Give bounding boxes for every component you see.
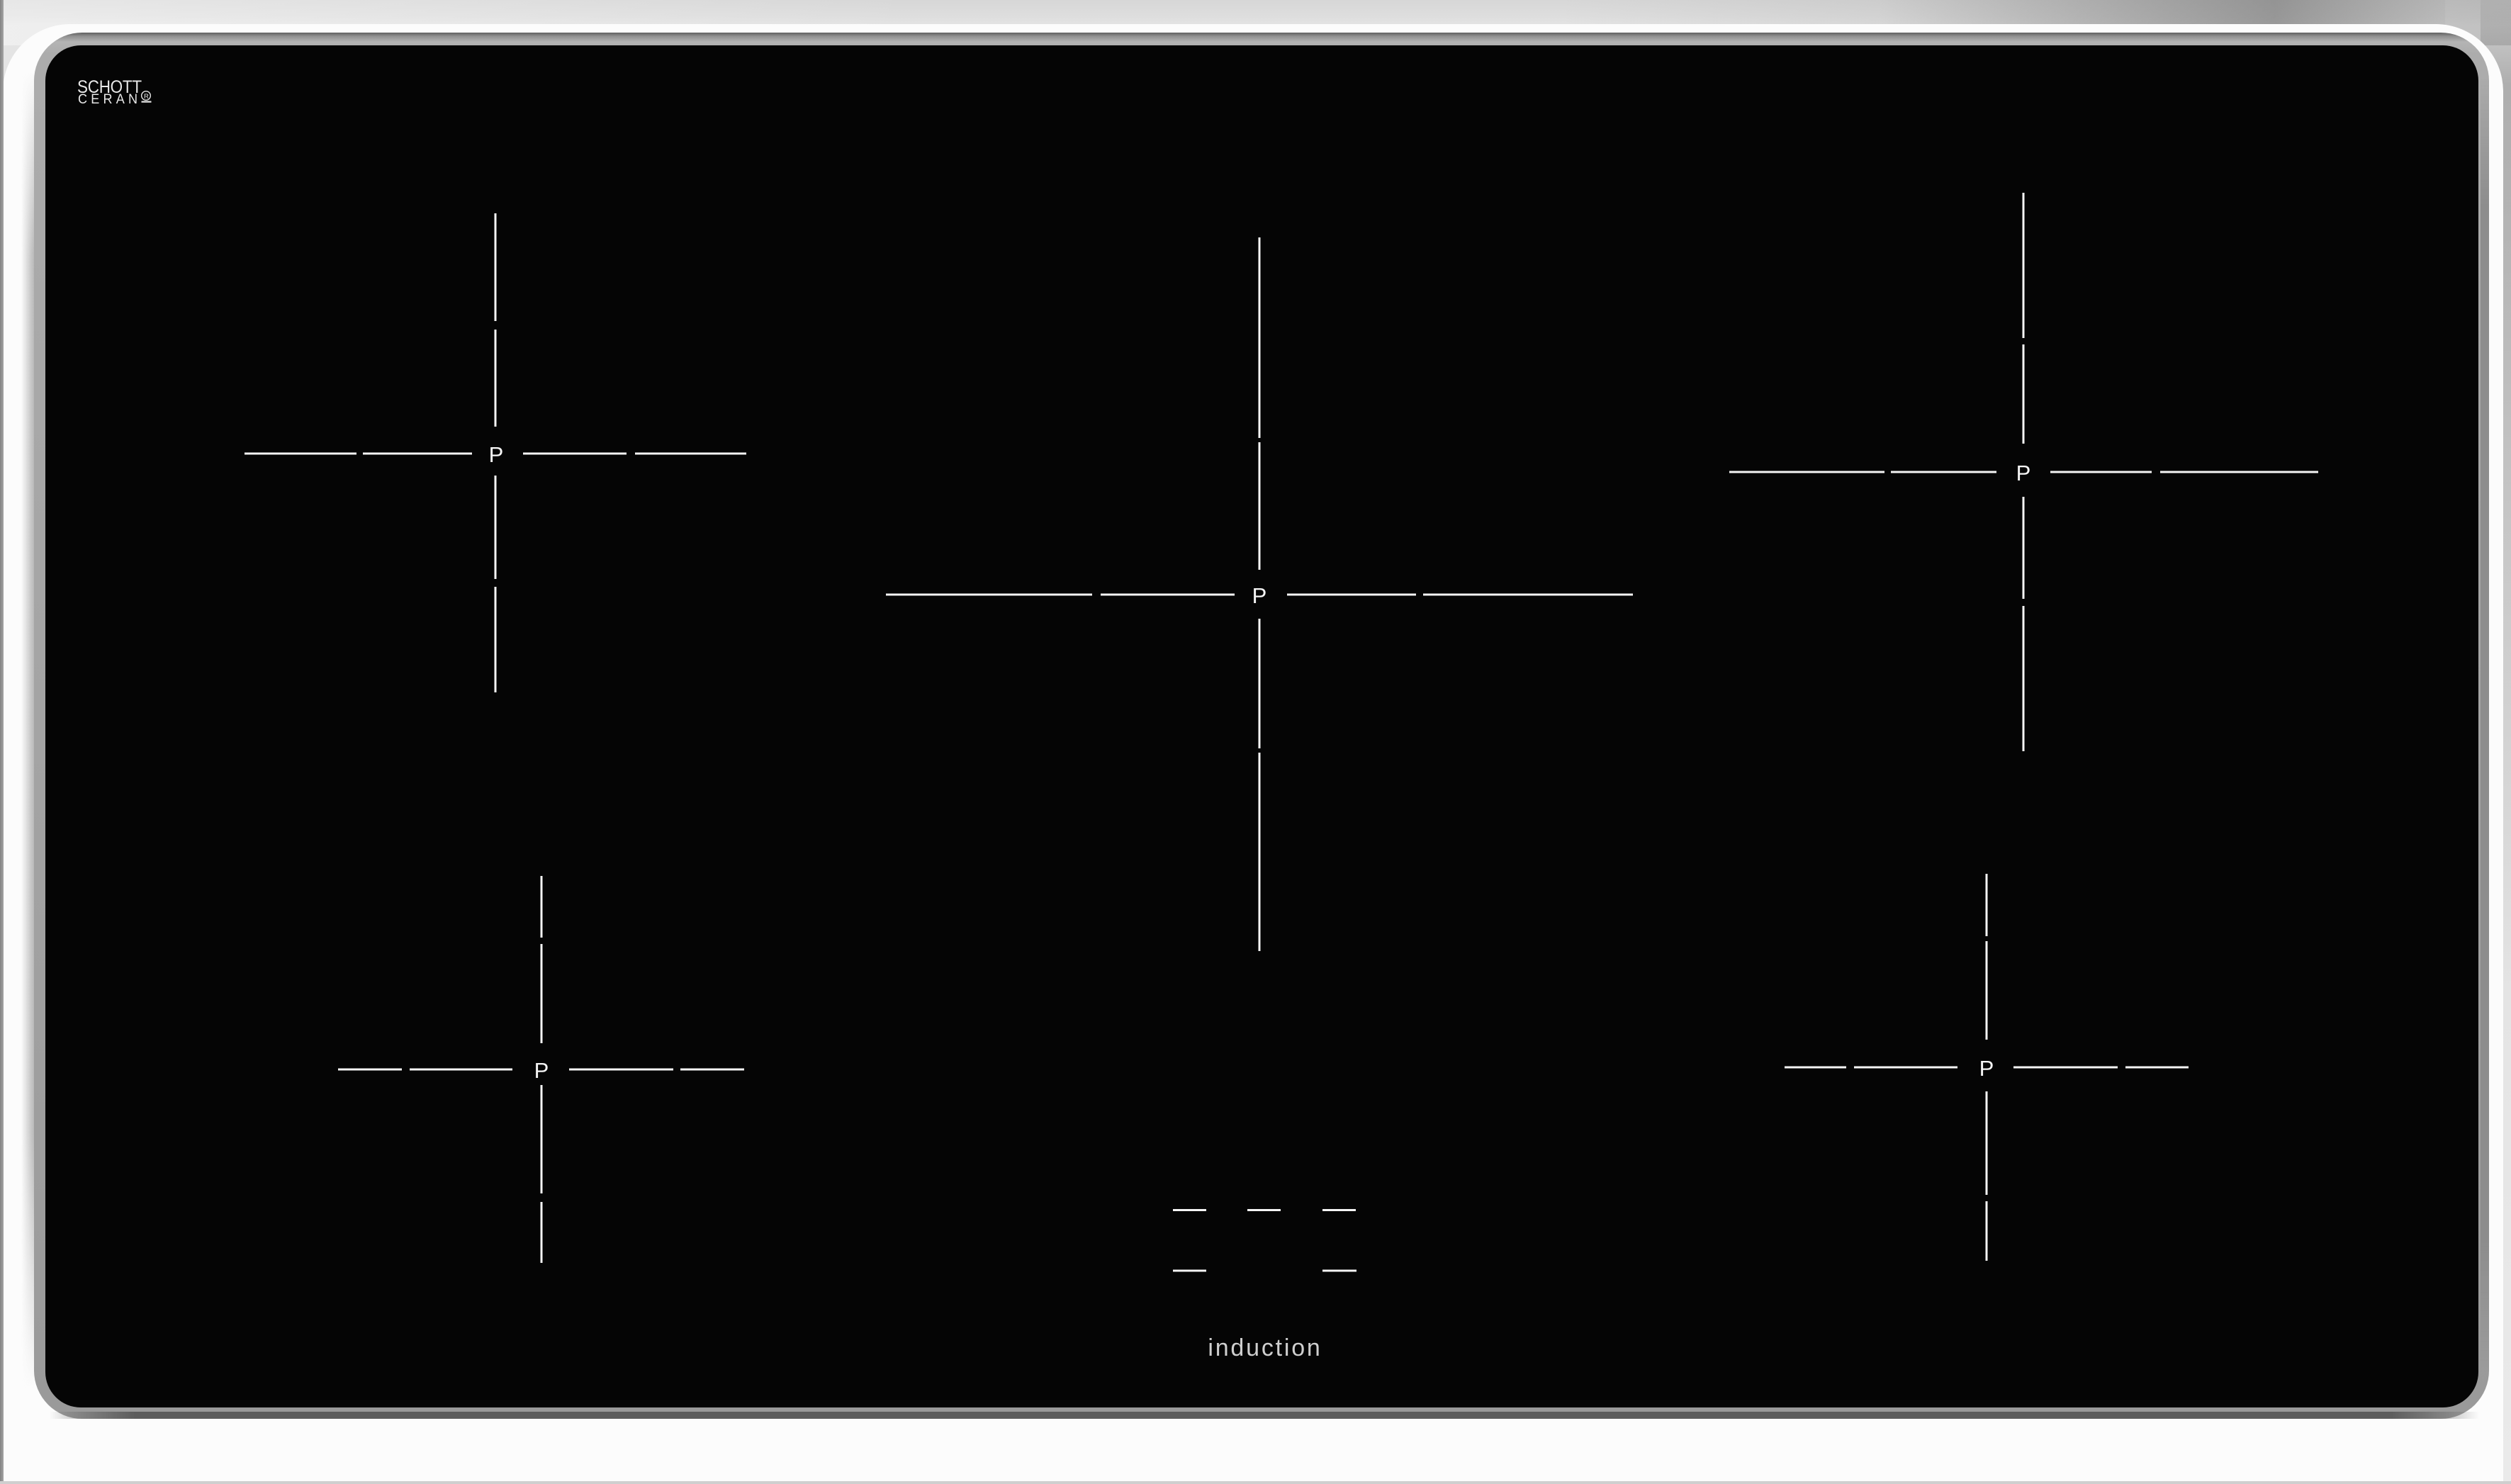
svg-text:P: P bbox=[534, 1058, 549, 1083]
svg-text:CERAN: CERAN bbox=[78, 91, 141, 107]
svg-text:P: P bbox=[1252, 583, 1267, 608]
svg-text:induction: induction bbox=[1208, 1334, 1322, 1361]
svg-text:P: P bbox=[489, 442, 504, 467]
svg-text:P: P bbox=[1979, 1056, 1994, 1081]
svg-text:R: R bbox=[144, 93, 149, 101]
svg-text:P: P bbox=[2016, 461, 2031, 485]
